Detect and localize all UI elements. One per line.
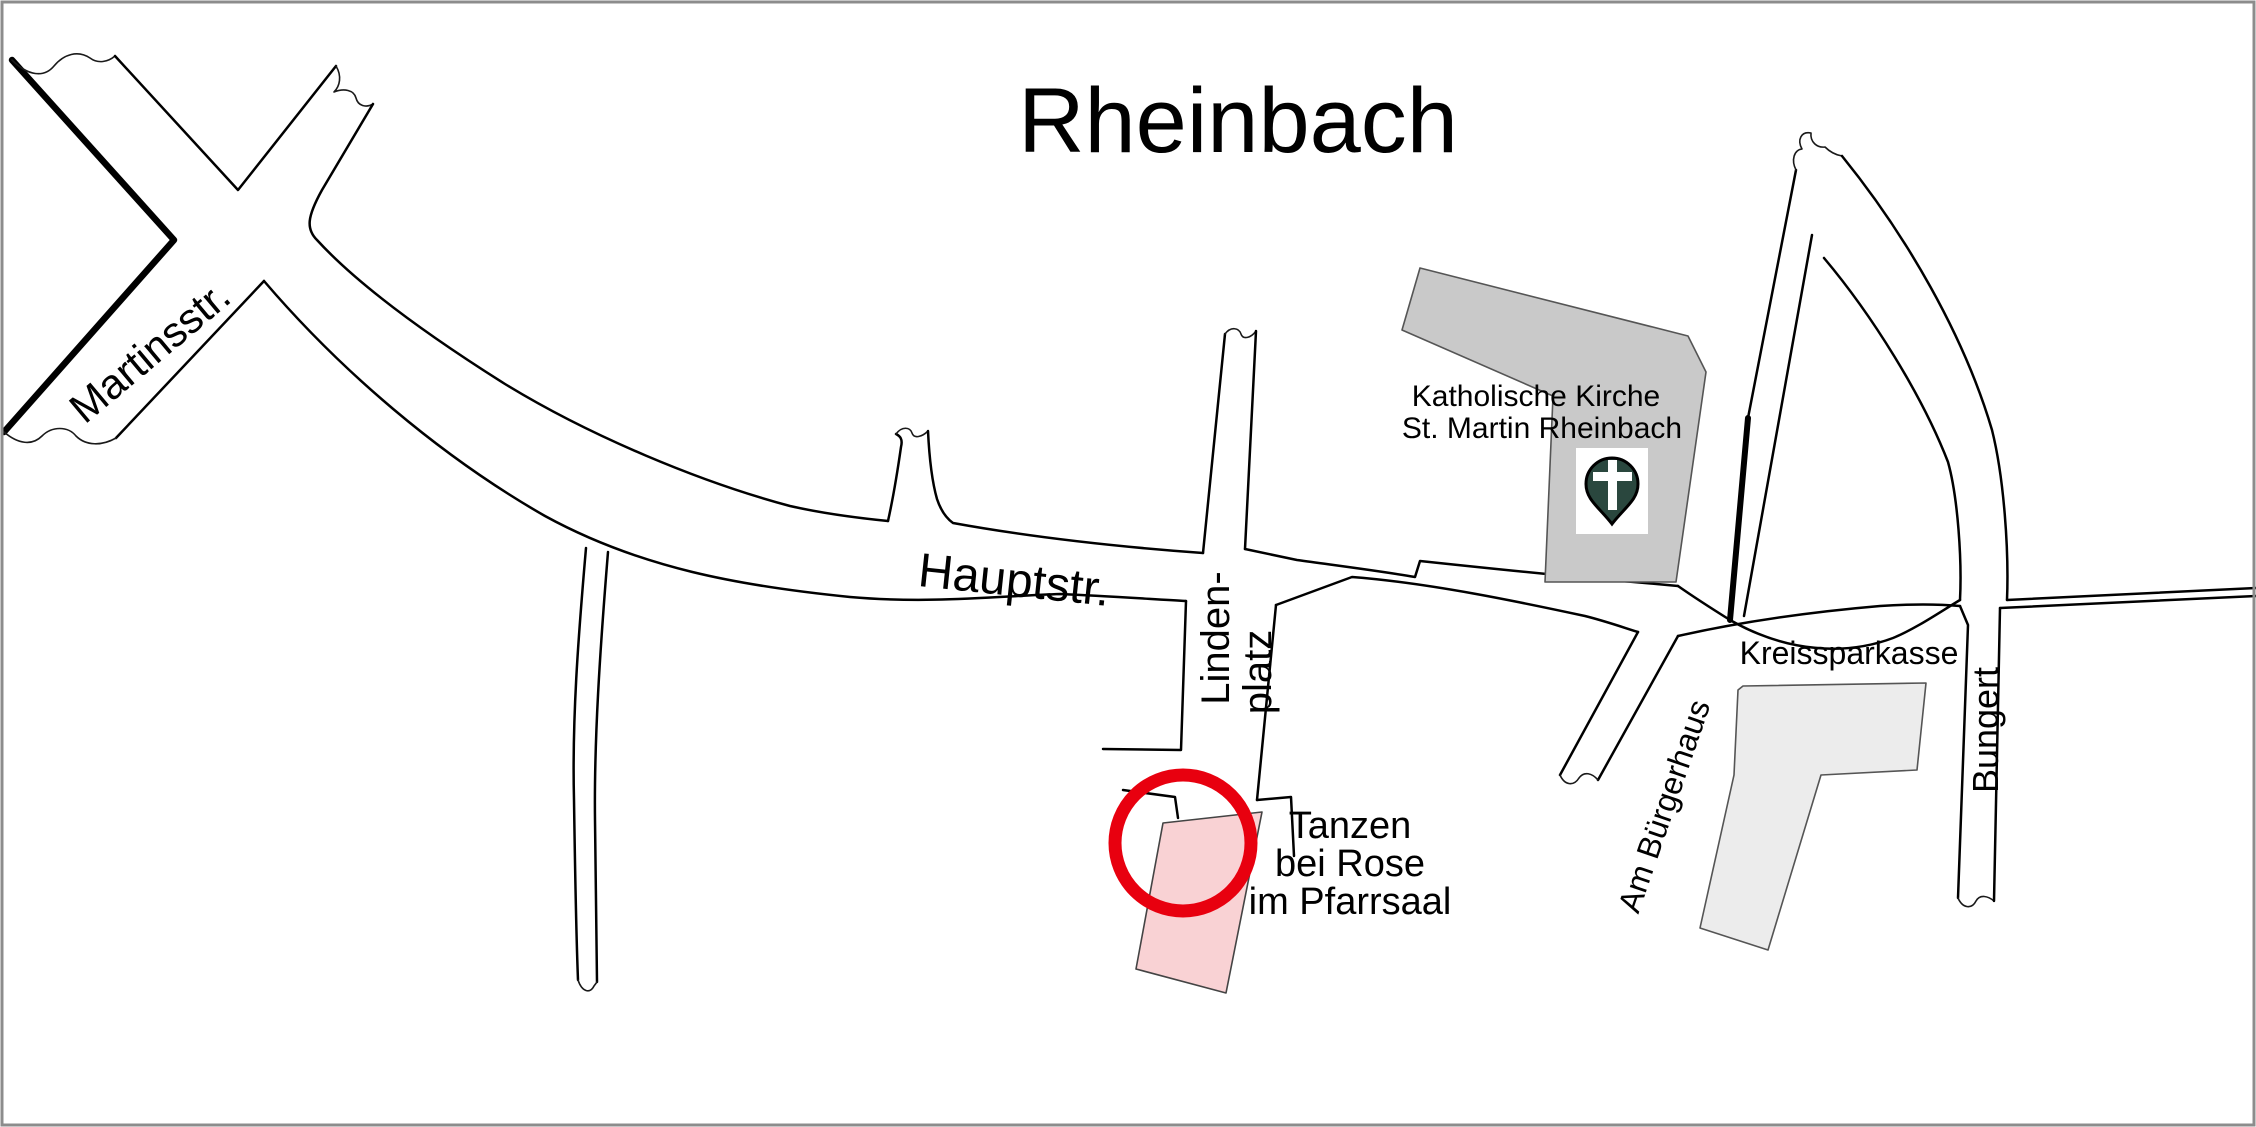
street-label-bungert: Bungert bbox=[1965, 667, 2006, 793]
place-label-church-line2: St. Martin Rheinbach bbox=[1402, 412, 1682, 445]
venue-label-line1: Tanzen bbox=[1289, 805, 1412, 847]
map-canvas: Rheinbach Martinsstr. Hauptstr. Linden- … bbox=[0, 0, 2256, 1127]
church-pin-icon bbox=[1576, 448, 1648, 534]
place-label-bank: Kreissparkasse bbox=[1740, 635, 1959, 671]
place-label-church-line1: Katholische Kirche bbox=[1412, 380, 1660, 413]
venue-label-line2: bei Rose bbox=[1275, 843, 1425, 885]
rheinbach-map-svg: Rheinbach Martinsstr. Hauptstr. Linden- … bbox=[0, 0, 2256, 1127]
street-label-lindenplatz-line2: platz bbox=[1236, 630, 1280, 715]
venue-label-line3: im Pfarrsaal bbox=[1249, 881, 1452, 923]
street-label-lindenplatz-line1: Linden- bbox=[1194, 571, 1238, 704]
map-title: Rheinbach bbox=[1018, 70, 1458, 172]
